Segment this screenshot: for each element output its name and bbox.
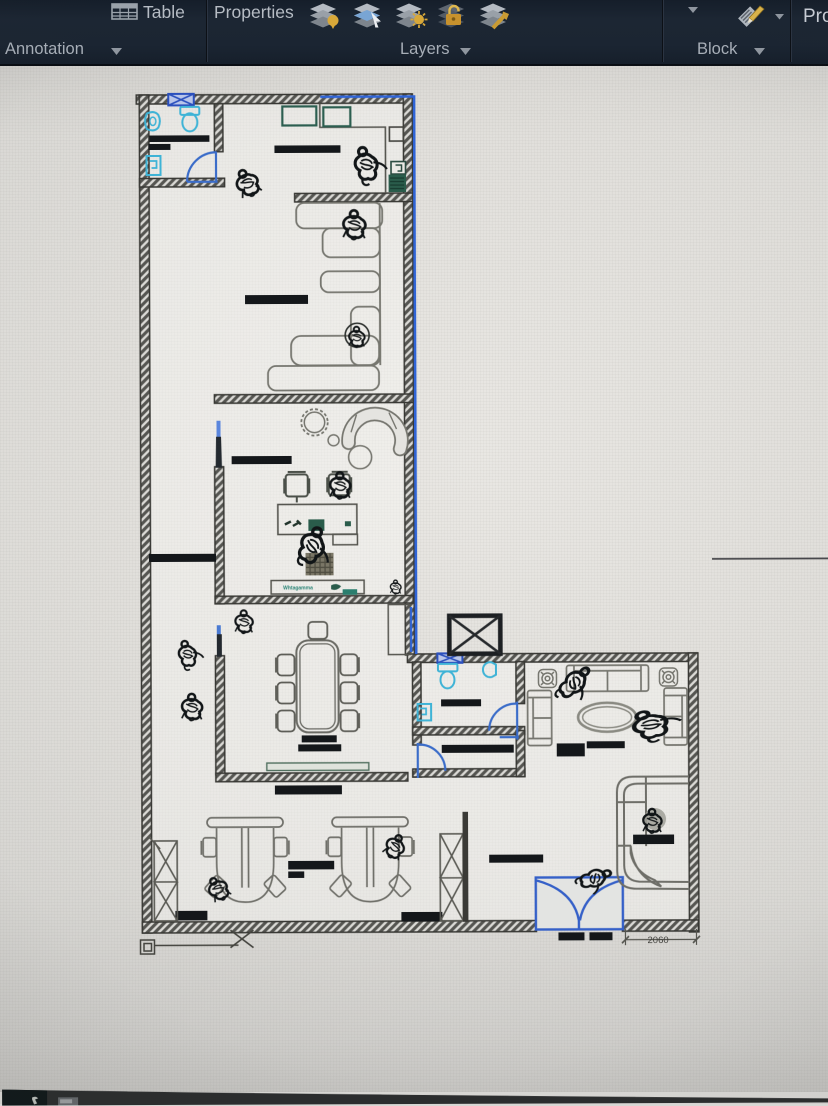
svg-text:2060: 2060 [647, 935, 668, 946]
svg-text:Whtagamma: Whtagamma [283, 585, 313, 591]
